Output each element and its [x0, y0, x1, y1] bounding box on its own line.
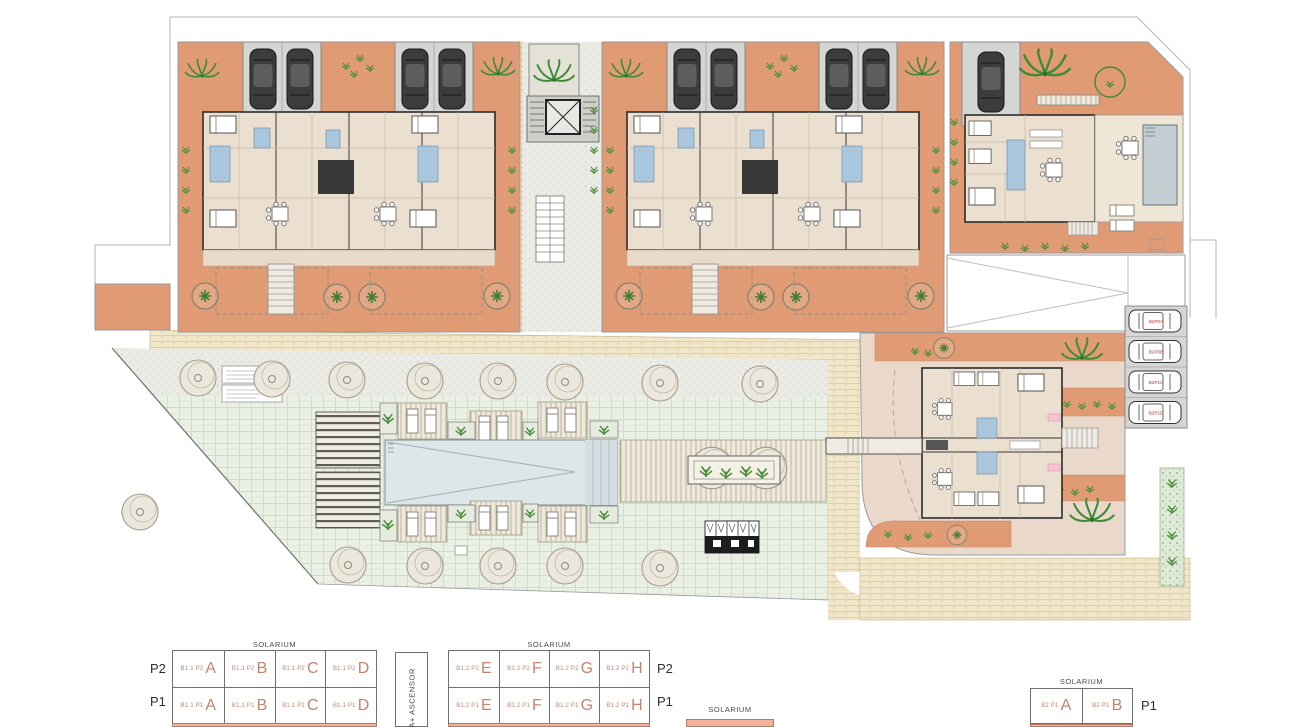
- unit-code: B2 P1: [1092, 703, 1109, 709]
- legend-cell: B1.1 P1A: [173, 687, 224, 723]
- unit-tag-pink: [1048, 464, 1060, 471]
- legend-cell: B1.1 P1B: [224, 687, 275, 723]
- unit-code: B1.1 P1: [232, 703, 255, 709]
- parking-spot-label: B2P1C: [1149, 380, 1164, 385]
- solarium-label-b12: SOLARIUM: [448, 640, 650, 649]
- central-walkway: [523, 42, 603, 332]
- solarium-label-b11: SOLARIUM: [172, 640, 377, 649]
- unit-letter: D: [358, 697, 370, 715]
- pool-kiosk: [705, 521, 759, 553]
- unit-letter: D: [358, 660, 370, 678]
- unit-letter: H: [631, 660, 643, 678]
- legend-ground-floor-bar: [448, 723, 650, 727]
- mid-solarium-bar: [686, 719, 774, 727]
- stairs-elevator-label: ESCALERA+ ASCENSOR: [407, 657, 416, 727]
- unit-code: B1.2 P1: [507, 703, 530, 709]
- unit-letter: F: [532, 660, 542, 678]
- villa-pool: [1143, 125, 1177, 205]
- parking-spot-label: B2P1D: [1149, 411, 1164, 416]
- level-label: P2: [657, 661, 673, 676]
- legend-cell: B1.2 P1G: [549, 687, 599, 723]
- unit-letter: G: [581, 697, 593, 715]
- legend-cell: B1.1 P1C: [275, 687, 326, 723]
- swimming-pool: [385, 440, 617, 505]
- elevator-core: [527, 96, 599, 142]
- unit-letter: G: [581, 660, 593, 678]
- solarium-label-mid: SOLARIUM: [660, 705, 800, 714]
- legend-cell: B1.1 P2A: [173, 651, 224, 687]
- unit-letter: A: [1061, 697, 1072, 715]
- villa-plot: [950, 42, 1183, 253]
- unit-code: B1.1 P1: [282, 703, 305, 709]
- level-label: P1: [150, 694, 166, 709]
- legend-cell: B1.1 P1D: [325, 687, 376, 723]
- site-plan-canvas: B2P0A B2P0B B2P1C B2P1D SOLARIUM P2 P1 B…: [0, 0, 1290, 727]
- building-b1-1: [95, 42, 520, 332]
- unit-code: B1.2 P2: [456, 666, 479, 672]
- unit-letter: B: [257, 697, 268, 715]
- garden-stairs: [536, 196, 564, 262]
- unit-letter: B: [1112, 697, 1123, 715]
- unit-letter: E: [481, 660, 492, 678]
- unit-code: B1.2 P1: [456, 703, 479, 709]
- unit-code: B1.1 P1: [333, 703, 356, 709]
- unit-letter: C: [307, 660, 319, 678]
- legend-cell: B1.2 P2H: [599, 651, 649, 687]
- unit-code: B1.2 P1: [556, 703, 579, 709]
- b2-parking: B2P0A B2P0B B2P1C B2P1D: [1125, 306, 1187, 428]
- legend-cell: B1.1 P2D: [325, 651, 376, 687]
- level-label: P1: [1141, 698, 1157, 713]
- unit-code: B1.2 P2: [556, 666, 579, 672]
- legend-table-b12: B1.2 P2E B1.2 P2F B1.2 P2G B1.2 P2H B1.2…: [448, 650, 650, 724]
- unit-letter: C: [307, 697, 319, 715]
- right-deck: [620, 440, 826, 502]
- solarium-label-b2: SOLARIUM: [1030, 677, 1133, 686]
- legend-cell: B1.2 P1F: [499, 687, 549, 723]
- legend-ground-floor-bar: [172, 723, 377, 727]
- villa-steps: [1068, 222, 1098, 235]
- legend-cell: B1.1 P2C: [275, 651, 326, 687]
- stairs-elevator-box: ESCALERA+ ASCENSOR: [395, 652, 428, 727]
- unit-code: B1.1 P2: [232, 666, 255, 672]
- legend-cell: B1.2 P2G: [549, 651, 599, 687]
- legend-cell: B2 P1A: [1031, 689, 1082, 723]
- legend-table-b11: B1.1 P2A B1.1 P2B B1.1 P2C B1.1 P2D B1.1…: [172, 650, 377, 724]
- unit-code: B1.1 P2: [333, 666, 356, 672]
- unit-code: B2 P1: [1041, 703, 1058, 709]
- unit-letter: A: [205, 660, 216, 678]
- site-plan-drawing: B2P0A B2P0B B2P1C B2P1D: [0, 0, 1290, 727]
- legend-cell: B1.2 P1H: [599, 687, 649, 723]
- unit-code: B1.1 P2: [181, 666, 204, 672]
- legend-cell: B1.2 P2E: [449, 651, 499, 687]
- level-label: P2: [150, 661, 166, 676]
- unit-code: B1.2 P2: [507, 666, 530, 672]
- unit-code: B1.2 P1: [606, 703, 629, 709]
- legend-cell: B1.1 P2B: [224, 651, 275, 687]
- unit-letter: A: [205, 697, 216, 715]
- legend-cell: B1.2 P1E: [449, 687, 499, 723]
- unit-letter: F: [532, 697, 542, 715]
- b2-entry-bridge: [826, 438, 922, 454]
- parking-spot-label: B2P0B: [1149, 350, 1163, 355]
- legend-cell: B1.2 P2F: [499, 651, 549, 687]
- building-b1-2: [602, 42, 944, 332]
- unit-letter: E: [481, 697, 492, 715]
- legend-cell: B2 P1B: [1082, 689, 1133, 723]
- unit-letter: B: [257, 660, 268, 678]
- unit-letter: H: [631, 697, 643, 715]
- unit-code: B1.1 P1: [181, 703, 204, 709]
- legend-table-b2: B2 P1A B2 P1B: [1030, 688, 1133, 724]
- unit-tag-pink: [1048, 414, 1060, 421]
- unit-code: B1.2 P2: [606, 666, 629, 672]
- parking-spot-label: B2P0A: [1149, 319, 1164, 324]
- unit-code: B1.1 P2: [282, 666, 305, 672]
- communal-garden: [112, 348, 828, 600]
- b2-stairs: [1062, 428, 1098, 448]
